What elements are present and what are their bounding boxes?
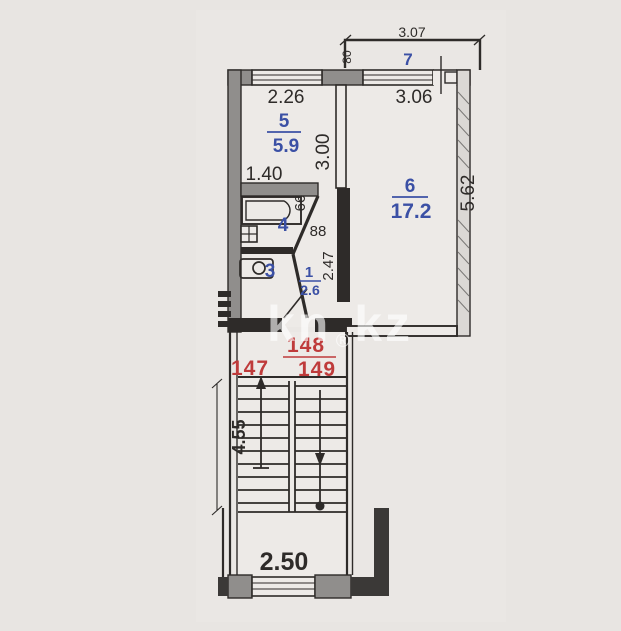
room-number-kitchen: 5 xyxy=(279,111,290,132)
dim-balcony-depth: 80 xyxy=(340,50,354,64)
dim-niche-depth: 88 xyxy=(310,223,327,240)
room-number-wc: 3 xyxy=(265,261,276,282)
kitchen-window-icon xyxy=(252,70,322,85)
watermark-registered-icon: ® xyxy=(336,331,350,352)
floorplan-canvas: 3.07 80 7 2.26 5 5.9 1.40 3.00 3.06 6 17… xyxy=(0,0,621,631)
dim-kitchen-depth: 3.00 xyxy=(313,134,334,171)
dim-stairs-length: 4.55 xyxy=(229,419,249,454)
room-number-hall: 1 xyxy=(305,264,313,281)
dim-living-depth: 5.62 xyxy=(458,175,479,212)
unit-number-left: 147 xyxy=(231,357,269,380)
room-area-living: 17.2 xyxy=(391,200,432,223)
dim-living-width: 3.06 xyxy=(396,87,433,108)
watermark-right: kz xyxy=(354,296,413,352)
room-number-balcony: 7 xyxy=(403,50,412,69)
dim-kitchen-width: 2.26 xyxy=(268,87,305,108)
floorplan-scan: 3.07 80 7 2.26 5 5.9 1.40 3.00 3.06 6 17… xyxy=(0,0,621,631)
stove-icon xyxy=(241,226,257,242)
dim-niche-width: 66 xyxy=(292,195,309,212)
entry-window-icon xyxy=(252,577,315,596)
room-number-living: 6 xyxy=(405,176,416,197)
unit-number-right: 149 xyxy=(298,358,336,381)
dim-hall-length: 2.47 xyxy=(320,251,337,280)
room-area-kitchen: 5.9 xyxy=(273,136,299,157)
living-window-icon xyxy=(363,70,433,85)
dim-entry-width: 2.50 xyxy=(260,548,309,576)
watermark-left: kn xyxy=(267,296,331,352)
dim-balcony-width: 3.07 xyxy=(398,24,425,40)
dim-bath-width: 1.40 xyxy=(246,164,283,185)
room-number-bath: 4 xyxy=(278,215,289,236)
